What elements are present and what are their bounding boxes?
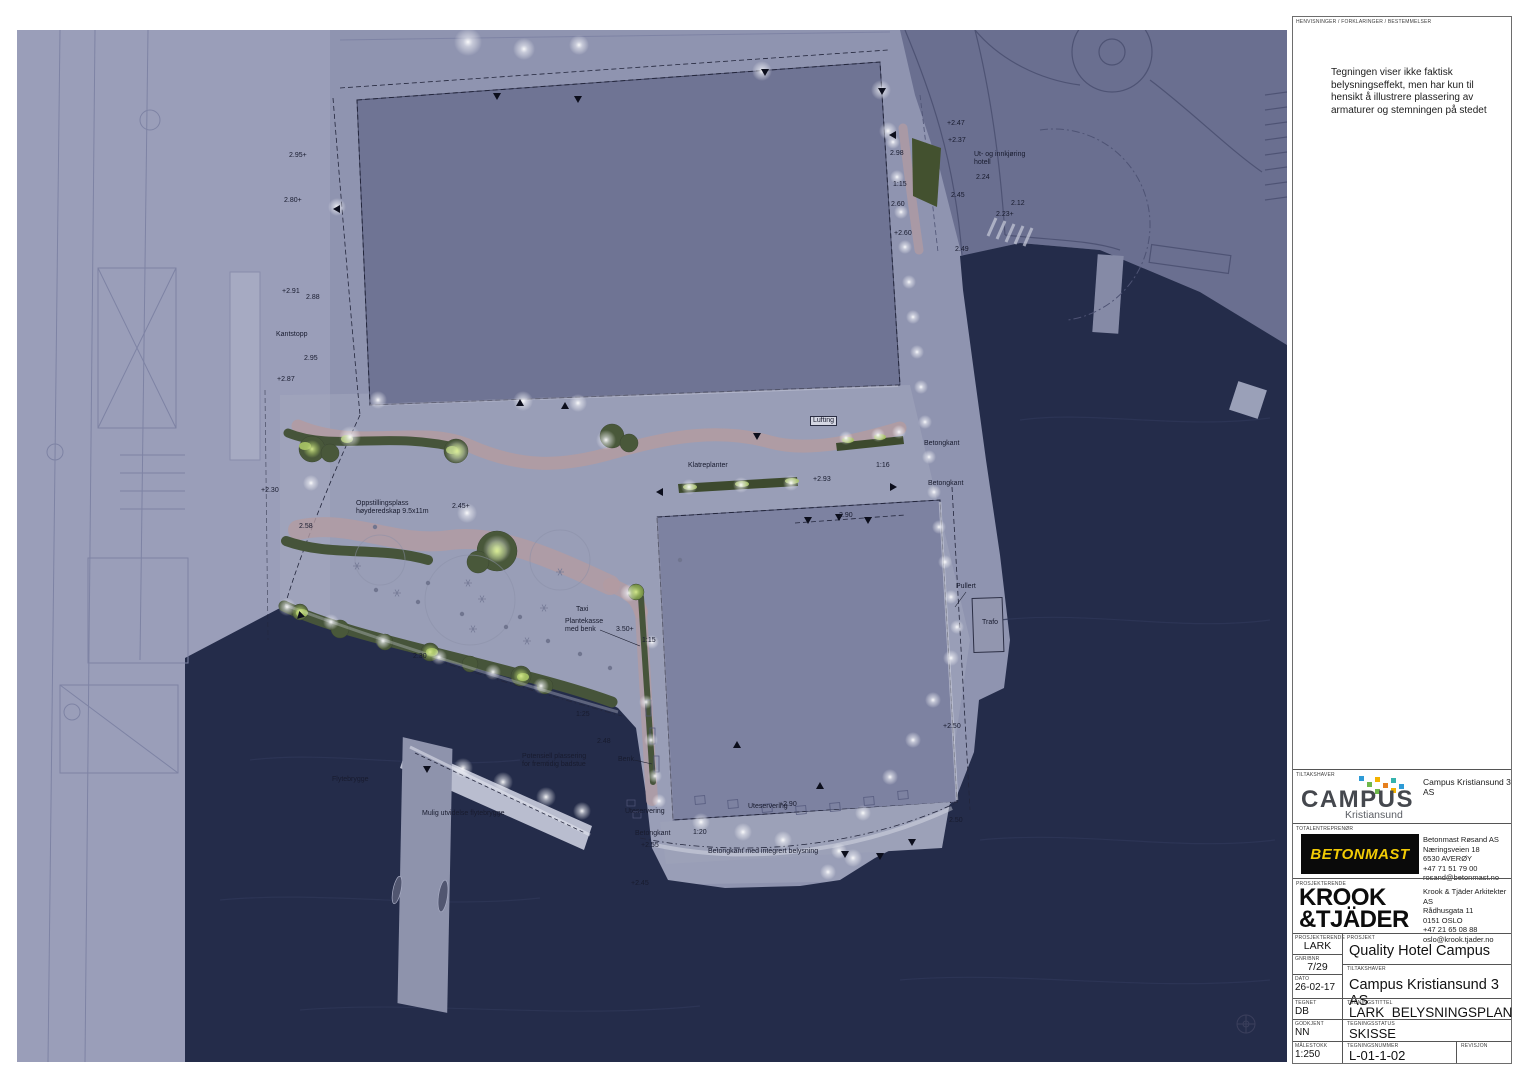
field-value: LARK_BELYSNINGSPLAN [1349, 1005, 1512, 1020]
field-value: 26-02-17 [1295, 982, 1335, 993]
field-label: PROSJEKT [1347, 935, 1375, 941]
plan-label: +2.93 [813, 476, 831, 484]
plan-label: 2.60 [891, 201, 905, 209]
plan-label: 1:25 [576, 711, 590, 719]
plan-label: 2.80+ [284, 197, 302, 205]
plan-label: 1:16 [876, 462, 890, 470]
address-line: 6530 AVERØY [1423, 854, 1499, 864]
plan-label: +2.50 [943, 723, 961, 731]
field-label: TOTALENTREPRENØR [1296, 826, 1353, 832]
site-plan-lighting-drawing [17, 30, 1287, 1062]
address-line: Betonmast Røsand AS [1423, 835, 1499, 845]
plan-label: +2.47 [947, 120, 965, 128]
plan-label: 2.98 [890, 150, 904, 158]
drawing-sheet: { "margin": { "header_label": "HENVISNIN… [0, 0, 1529, 1080]
plan-label: 2.12 [1011, 200, 1025, 208]
plan-label: +2.91 [282, 288, 300, 296]
plan-label: 2.45+ [452, 503, 470, 511]
betonmast-logo-word: BETONMAST [1310, 846, 1409, 863]
campus-logo-sub: Kristiansund [1345, 809, 1403, 821]
plan-label: Betongkant [924, 440, 959, 448]
field-dato: DATO 26-02-17 [1293, 974, 1342, 998]
field-prosjekt: PROSJEKT Quality Hotel Campus [1342, 933, 1511, 964]
plan-label: 2.90 [839, 512, 853, 520]
plan-label: +2.37 [948, 137, 966, 145]
tiltakshaver-block: TILTAKSHAVER CAMPUS Kristiansund Campus … [1293, 769, 1511, 824]
plan-label: Betongkant med integrert belysning [708, 848, 818, 856]
field-value: DB [1295, 1006, 1309, 1017]
plan-label: Taxi [576, 606, 588, 614]
prosjekterende-block: PROSJEKTERENDE KROOK &TJÄDER Krook & Tjä… [1293, 878, 1511, 934]
field-value: NN [1295, 1027, 1309, 1038]
hotel-building-lower [640, 487, 970, 864]
plan-label: 2.95+ [289, 152, 307, 160]
plan-label: 2.88 [306, 294, 320, 302]
field-tegningsnummer: TEGNINGSNUMMER L-01-1-02 [1342, 1041, 1456, 1063]
field-gnr-bnr: GNR/BNR 7/29 [1293, 954, 1342, 974]
campus-kristiansund-logo: CAMPUS Kristiansund [1301, 776, 1421, 820]
field-value: SKISSE [1349, 1026, 1396, 1041]
plan-label: Oppstillingsplass høyderedskap 9.5x11m [356, 500, 429, 516]
field-value: 7/29 [1293, 961, 1342, 973]
plan-label: 1:15 [893, 181, 907, 189]
field-tegningstittel: TEGNINGSTITTEL LARK_BELYSNINGSPLAN [1342, 998, 1511, 1019]
hotel-building-top [340, 50, 900, 405]
plan-label: 2.95 [304, 355, 318, 363]
logo-square [1375, 777, 1380, 782]
plan-label: 2.24 [976, 174, 990, 182]
plan-label: Plantekasse med benk [565, 618, 603, 634]
plan-label: Klatreplanter [688, 462, 728, 470]
plan-label: +2.87 [277, 376, 295, 384]
plan-label: Flytebrygge [332, 776, 369, 784]
plan-label: 1:15 [642, 637, 656, 645]
plan-label: Lufting [810, 416, 837, 426]
krook-logo-line: &TJÄDER [1299, 909, 1409, 931]
field-prosjekterende: PROSJEKTERENDE LARK [1293, 933, 1342, 954]
plan-label: 2.50 [949, 817, 963, 825]
compass-symbol [1237, 1015, 1255, 1033]
field-tiltakshaver: TILTAKSHAVER Campus Kristiansund 3 AS [1342, 964, 1511, 998]
field-label: TILTAKSHAVER [1347, 966, 1386, 972]
plan-label: Betongkant [928, 480, 963, 488]
logo-square [1359, 776, 1364, 781]
address-line: Næringsveien 18 [1423, 845, 1499, 855]
plan-label: +2.90 [779, 801, 797, 809]
title-block-column: HENVISNINGER / FORKLARINGER / BESTEMMELS… [1292, 16, 1512, 1064]
drawing-note: Tegningen viser ikke faktisk belysningse… [1331, 67, 1491, 117]
field-value: Quality Hotel Campus [1349, 943, 1490, 959]
plan-label: 2.23+ [996, 211, 1014, 219]
plan-label: 2.48 [597, 738, 611, 746]
plan-label: 2.49 [955, 246, 969, 254]
plan-label: 3.50+ [616, 626, 634, 634]
plan-label: +2.45 [631, 880, 649, 888]
plan-label: Betongkant [635, 830, 670, 838]
field-value: 1:250 [1295, 1049, 1320, 1060]
plan-label: 2.58 [299, 523, 313, 531]
plan-label: +2.55 [641, 842, 659, 850]
betonmast-logo: BETONMAST [1301, 834, 1419, 874]
plan-label: +2.60 [894, 230, 912, 238]
plan-label: 2.45 [951, 192, 965, 200]
field-value: LARK [1293, 940, 1342, 952]
plan-label: 2.30 [413, 653, 427, 661]
address-line: +47 71 51 79 00 [1423, 864, 1499, 874]
address-line: 0151 OSLO [1423, 916, 1511, 926]
address-line: Krook & Tjäder Arkitekter AS [1423, 887, 1511, 906]
field-malestokk: MÅLESTOKK 1:250 [1293, 1041, 1342, 1063]
field-value: L-01-1-02 [1349, 1048, 1405, 1063]
plan-label: Benk [618, 756, 634, 764]
totalentreprenor-block: TOTALENTREPRENØR BETONMAST Betonmast Røs… [1293, 823, 1511, 879]
plan-label: 1:20 [693, 829, 707, 837]
field-label: REVISJON [1461, 1043, 1488, 1049]
tiltakshaver-value: Campus Kristiansund 3 AS [1423, 778, 1511, 797]
plan-label: Potensiell plassering for fremtidig bads… [522, 753, 586, 769]
plan-label: Pullert [956, 583, 976, 591]
logo-square [1391, 778, 1396, 783]
field-godkjent: GODKJENT NN [1293, 1019, 1342, 1041]
plan-label: Mulig utvidelse flytebrygge [422, 810, 505, 818]
plan-label: Trafo [982, 619, 998, 627]
plan-label: Uteservering [625, 808, 665, 816]
field-revisjon: REVISJON [1456, 1041, 1511, 1063]
pier [1092, 254, 1123, 334]
address-line: Rådhusgata 11 [1423, 906, 1511, 916]
plan-label: Ut- og innkjøring hotell [974, 151, 1025, 167]
field-tegnet: TEGNET DB [1293, 998, 1342, 1019]
krook-tjader-logo: KROOK &TJÄDER [1299, 887, 1409, 931]
plan-label: Kantstopp [276, 331, 308, 339]
margin-header-label: HENVISNINGER / FORKLARINGER / BESTEMMELS… [1296, 19, 1431, 25]
plan-label: +2.30 [261, 487, 279, 495]
field-tegningsstatus: TEGNINGSSTATUS SKISSE [1342, 1019, 1511, 1041]
